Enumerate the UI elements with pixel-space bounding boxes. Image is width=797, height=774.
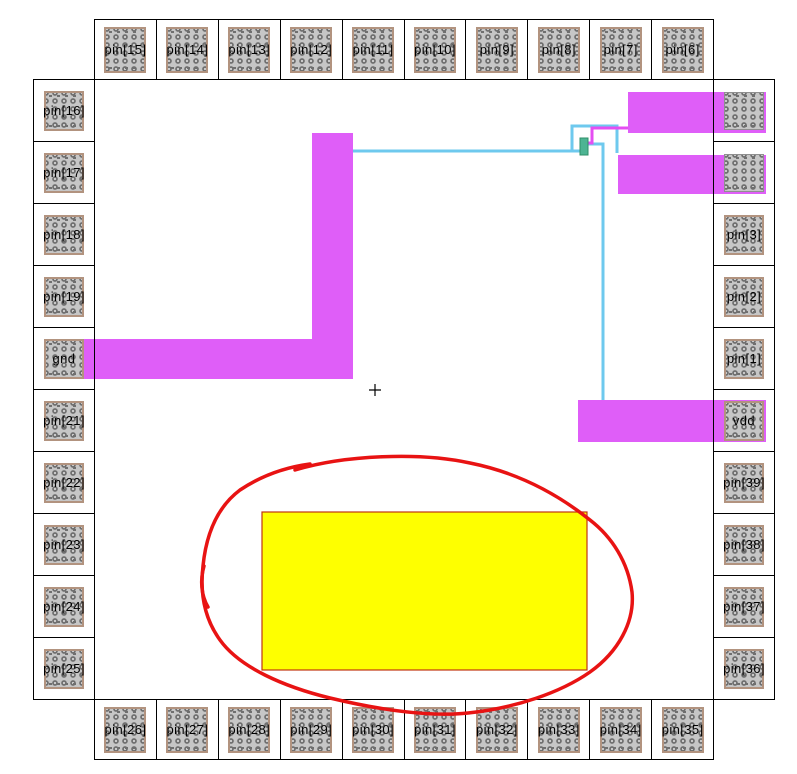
pad-cell-pin37[interactable]: pin[37] xyxy=(714,576,774,638)
pad-label: pin[10] xyxy=(414,43,456,56)
pad-label: pin[23] xyxy=(43,538,85,551)
pad-label: pin[24] xyxy=(43,600,85,613)
pad-cell-pin26[interactable]: pin[26] xyxy=(95,700,157,759)
pad-cell-pin28[interactable]: pin[28] xyxy=(219,700,281,759)
pad-label: pin[11] xyxy=(353,43,394,56)
pad-cell-pin14[interactable]: pin[14] xyxy=(157,20,219,79)
pad-cell-pin18[interactable]: pin[18] xyxy=(34,204,94,266)
pad-cell-pin10[interactable]: pin[10] xyxy=(405,20,467,79)
pad-cell-pin3[interactable]: pin[3] xyxy=(714,204,774,266)
magenta-wire[interactable] xyxy=(584,128,629,143)
pad-label: pin[22] xyxy=(43,476,85,489)
cyan-wire[interactable] xyxy=(584,144,603,401)
pad-cell-pin16[interactable]: pin[16] xyxy=(34,80,94,142)
pad-label: pin[25] xyxy=(43,662,85,675)
pad-cell-pin6[interactable]: pin[6] xyxy=(652,20,713,79)
pad-cell-pin7[interactable]: pin[7] xyxy=(590,20,652,79)
pad-cell-pin39[interactable]: pin[39] xyxy=(714,452,774,514)
pad-cell-pin35[interactable]: pin[35] xyxy=(652,700,713,759)
layout-canvas[interactable]: pin[15]pin[14]pin[13]pin[12]pin[11]pin[1… xyxy=(0,0,797,774)
pad-label: pin[3] xyxy=(727,228,761,241)
pad-cell-pin2[interactable]: pin[2] xyxy=(714,266,774,328)
pad-ring-bottom-row: pin[26]pin[27]pin[28]pin[29]pin[30]pin[3… xyxy=(94,699,714,760)
pad-label: pin[29] xyxy=(290,723,332,736)
pad-label: pin[13] xyxy=(228,43,270,56)
pad-cell-pin15[interactable]: pin[15] xyxy=(95,20,157,79)
pad-cell-pin19[interactable]: pin[19] xyxy=(34,266,94,328)
pad-label: pin[38] xyxy=(723,538,765,551)
pad-label: pin[6] xyxy=(666,43,700,56)
pad-cell-pin23[interactable]: pin[23] xyxy=(34,514,94,576)
metal-bar-gnd-route-horizontal[interactable] xyxy=(80,339,353,379)
pad-cell-vdd[interactable]: vdd xyxy=(714,390,774,452)
pad-ring-right-column: pin[3]pin[2]pin[1]vddpin[39]pin[38]pin[3… xyxy=(713,79,775,700)
pad-label: pin[17] xyxy=(43,166,85,179)
pad-cell-pin17[interactable]: pin[17] xyxy=(34,142,94,204)
pad-label: pin[26] xyxy=(105,723,147,736)
pad-cell-pin30[interactable]: pin[30] xyxy=(343,700,405,759)
pad-cell-pin29[interactable]: pin[29] xyxy=(281,700,343,759)
pad-label: pin[37] xyxy=(723,600,765,613)
pad-cell-unlabeled-right-0[interactable] xyxy=(714,80,774,142)
pad-cell-pin25[interactable]: pin[25] xyxy=(34,638,94,699)
pad-cell-pin11[interactable]: pin[11] xyxy=(343,20,405,79)
pad-cell-pin13[interactable]: pin[13] xyxy=(219,20,281,79)
pad-label: pin[39] xyxy=(723,476,765,489)
layout-shapes-layer xyxy=(0,0,797,774)
crosshair-marker xyxy=(369,384,381,396)
pad-cell-pin34[interactable]: pin[34] xyxy=(590,700,652,759)
pad-cell-pin36[interactable]: pin[36] xyxy=(714,638,774,699)
pad-label: pin[19] xyxy=(43,290,85,303)
pad-label: pin[14] xyxy=(166,43,208,56)
pad-cell-pin27[interactable]: pin[27] xyxy=(157,700,219,759)
pad-label: pin[27] xyxy=(166,723,208,736)
pad-label: pin[15] xyxy=(105,43,147,56)
pad-label: pin[7] xyxy=(604,43,638,56)
pad-label: pin[1] xyxy=(727,352,761,365)
bond-pad[interactable] xyxy=(724,92,764,130)
pad-label: pin[28] xyxy=(228,723,270,736)
pad-cell-pin1[interactable]: pin[1] xyxy=(714,328,774,390)
pad-label: pin[35] xyxy=(662,723,704,736)
via[interactable] xyxy=(580,138,588,155)
bond-pad[interactable] xyxy=(724,154,764,192)
pad-label: pin[16] xyxy=(43,104,85,117)
pad-cell-pin33[interactable]: pin[33] xyxy=(528,700,590,759)
pad-label: gnd xyxy=(53,352,76,365)
yellow-block[interactable] xyxy=(262,512,587,670)
pad-cell-pin31[interactable]: pin[31] xyxy=(405,700,467,759)
pad-ring-left-column: pin[16]pin[17]pin[18]pin[19]gndpin[21]pi… xyxy=(33,79,95,700)
pad-label: pin[30] xyxy=(352,723,394,736)
pad-label: pin[32] xyxy=(476,723,518,736)
pad-label: pin[18] xyxy=(43,228,85,241)
pad-label: pin[2] xyxy=(727,290,761,303)
pad-label: pin[8] xyxy=(542,43,576,56)
pad-cell-pin21[interactable]: pin[21] xyxy=(34,390,94,452)
pad-cell-pin8[interactable]: pin[8] xyxy=(528,20,590,79)
pad-cell-pin24[interactable]: pin[24] xyxy=(34,576,94,638)
pad-cell-unlabeled-right-1[interactable] xyxy=(714,142,774,204)
pad-label: pin[21] xyxy=(43,414,85,427)
pad-cell-pin38[interactable]: pin[38] xyxy=(714,514,774,576)
cyan-wire[interactable] xyxy=(572,126,617,153)
pad-label: vdd xyxy=(733,414,755,427)
pad-label: pin[33] xyxy=(538,723,580,736)
pad-label: pin[31] xyxy=(414,723,456,736)
pad-cell-pin22[interactable]: pin[22] xyxy=(34,452,94,514)
pad-label: pin[36] xyxy=(723,662,765,675)
pad-cell-gnd[interactable]: gnd xyxy=(34,328,94,390)
pad-label: pin[12] xyxy=(290,43,332,56)
pad-cell-pin12[interactable]: pin[12] xyxy=(281,20,343,79)
pad-cell-pin32[interactable]: pin[32] xyxy=(466,700,528,759)
pad-ring-top-row: pin[15]pin[14]pin[13]pin[12]pin[11]pin[1… xyxy=(94,19,714,80)
pad-label: pin[34] xyxy=(600,723,642,736)
pad-label: pin[9] xyxy=(480,43,514,56)
pad-cell-pin9[interactable]: pin[9] xyxy=(466,20,528,79)
